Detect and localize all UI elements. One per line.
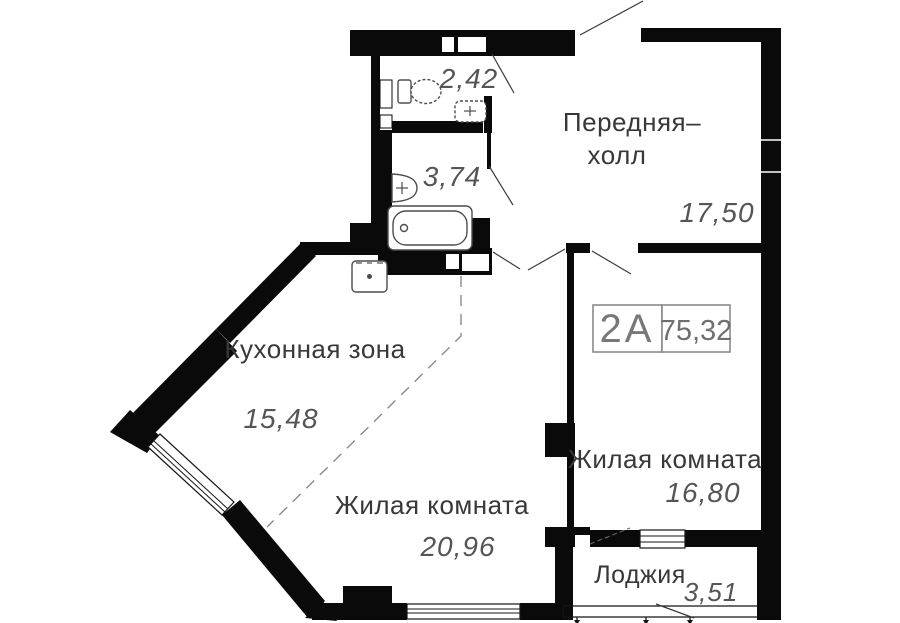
window-living-room-1 (407, 604, 520, 619)
living-room-1-name-label: Жилая комната (335, 490, 529, 520)
living-room-2-area-label: 16,80 (665, 477, 740, 508)
hall-area-label: 17,50 (679, 197, 754, 228)
floor-plan: 2А 75,32 2,42 3,74 Передняя– холл 17,50 … (0, 0, 900, 623)
loggia-area-label: 3,51 (684, 577, 739, 607)
living-room-2-name-label: Жилая комната (568, 444, 762, 474)
unit-total-area-label: 75,32 (660, 315, 733, 347)
bathroom-sink-icon (392, 174, 417, 202)
living-room-1-area-label: 20,96 (419, 531, 495, 562)
bathroom-area-label: 3,74 (423, 161, 482, 192)
window-loggia (640, 530, 685, 548)
floor-plan-page: 2А 75,32 2,42 3,74 Передняя– холл 17,50 … (0, 0, 900, 623)
bathtub-icon (388, 206, 472, 250)
kitchen-sink-icon (352, 261, 387, 292)
unit-type-label: 2А (600, 307, 655, 351)
hall-name-line1: Передняя– (563, 107, 701, 137)
wc-area-label: 2,42 (439, 63, 499, 94)
hall-name-line2: холл (588, 140, 647, 170)
unit-badge: 2А 75,32 (593, 305, 732, 352)
wc-sink-icon (455, 101, 486, 122)
kitchen-name-label: Кухонная зона (224, 334, 405, 364)
toilet-icon (398, 80, 441, 104)
kitchen-area-label: 15,48 (243, 403, 318, 434)
window-kitchen-bay (148, 434, 234, 515)
loggia-name-label: Лоджия (594, 561, 686, 589)
